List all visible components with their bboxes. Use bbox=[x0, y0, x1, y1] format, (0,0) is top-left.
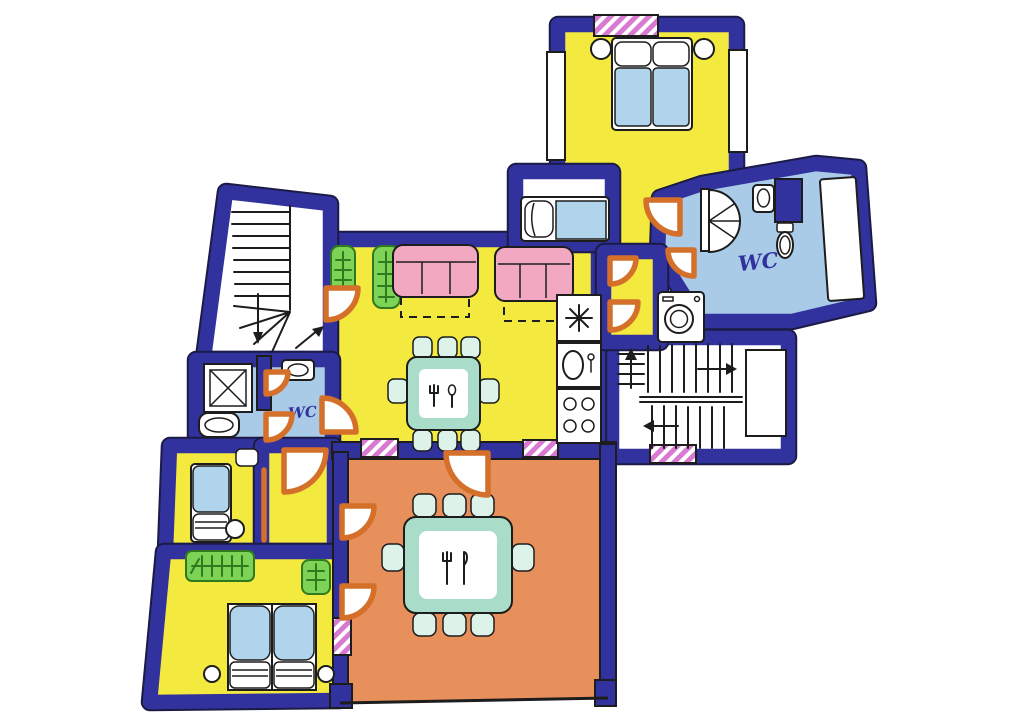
window bbox=[547, 52, 565, 160]
stove-icon bbox=[557, 389, 601, 443]
chair bbox=[443, 613, 466, 636]
nightstand bbox=[236, 449, 258, 466]
chair bbox=[461, 430, 480, 451]
pillow bbox=[274, 662, 314, 688]
chair bbox=[443, 494, 466, 517]
chair bbox=[388, 379, 408, 403]
shower-icon bbox=[204, 364, 252, 412]
chair bbox=[413, 430, 432, 451]
pillow bbox=[525, 201, 553, 237]
floor-plan-canvas: WC WC bbox=[0, 0, 1024, 724]
extractor-fan-icon bbox=[557, 295, 601, 341]
bedside-table bbox=[226, 520, 244, 538]
washing-machine-icon bbox=[658, 292, 704, 342]
chair bbox=[413, 613, 436, 636]
duvet bbox=[193, 466, 229, 512]
bathtub-icon bbox=[199, 413, 239, 437]
chair bbox=[413, 494, 436, 517]
chair bbox=[479, 379, 499, 403]
chair bbox=[438, 430, 457, 451]
kitchen-units bbox=[557, 295, 601, 443]
toilet-icon bbox=[777, 223, 793, 258]
duvet bbox=[615, 68, 651, 126]
duvet bbox=[230, 606, 270, 660]
duvet bbox=[556, 201, 606, 239]
window bbox=[746, 350, 786, 436]
chair bbox=[461, 337, 480, 358]
radiator-icon bbox=[186, 551, 254, 581]
bedside-table bbox=[204, 666, 220, 682]
bedside-table bbox=[318, 666, 334, 682]
chair bbox=[471, 494, 494, 517]
pillow bbox=[193, 514, 229, 540]
pillow bbox=[230, 662, 270, 688]
wc-label-main: WC bbox=[737, 247, 780, 276]
chair bbox=[512, 544, 534, 571]
bedside-table bbox=[694, 39, 714, 59]
entrance-hatch-icon bbox=[523, 440, 558, 457]
entrance-hatch-icon bbox=[333, 618, 351, 655]
kitchen-sink-icon bbox=[557, 343, 601, 387]
cabinet bbox=[775, 179, 802, 222]
pillow bbox=[615, 42, 651, 66]
wall-stub bbox=[595, 680, 616, 706]
sink-icon bbox=[753, 185, 774, 212]
window bbox=[729, 50, 747, 152]
pillow bbox=[653, 42, 689, 66]
bedside-table bbox=[591, 39, 611, 59]
duvet bbox=[653, 68, 689, 126]
chair bbox=[413, 337, 432, 358]
window bbox=[820, 177, 864, 301]
chair bbox=[471, 613, 494, 636]
entrance-hatch-icon bbox=[650, 445, 696, 463]
single-bed-niche bbox=[521, 197, 609, 241]
duvet bbox=[274, 606, 314, 660]
floor-plan: WC WC bbox=[0, 0, 1024, 724]
chair bbox=[382, 544, 404, 571]
entrance-hatch-icon bbox=[361, 439, 398, 457]
entrance-hatch-icon bbox=[594, 15, 658, 36]
chair bbox=[438, 337, 457, 358]
plant-icon bbox=[302, 560, 330, 594]
